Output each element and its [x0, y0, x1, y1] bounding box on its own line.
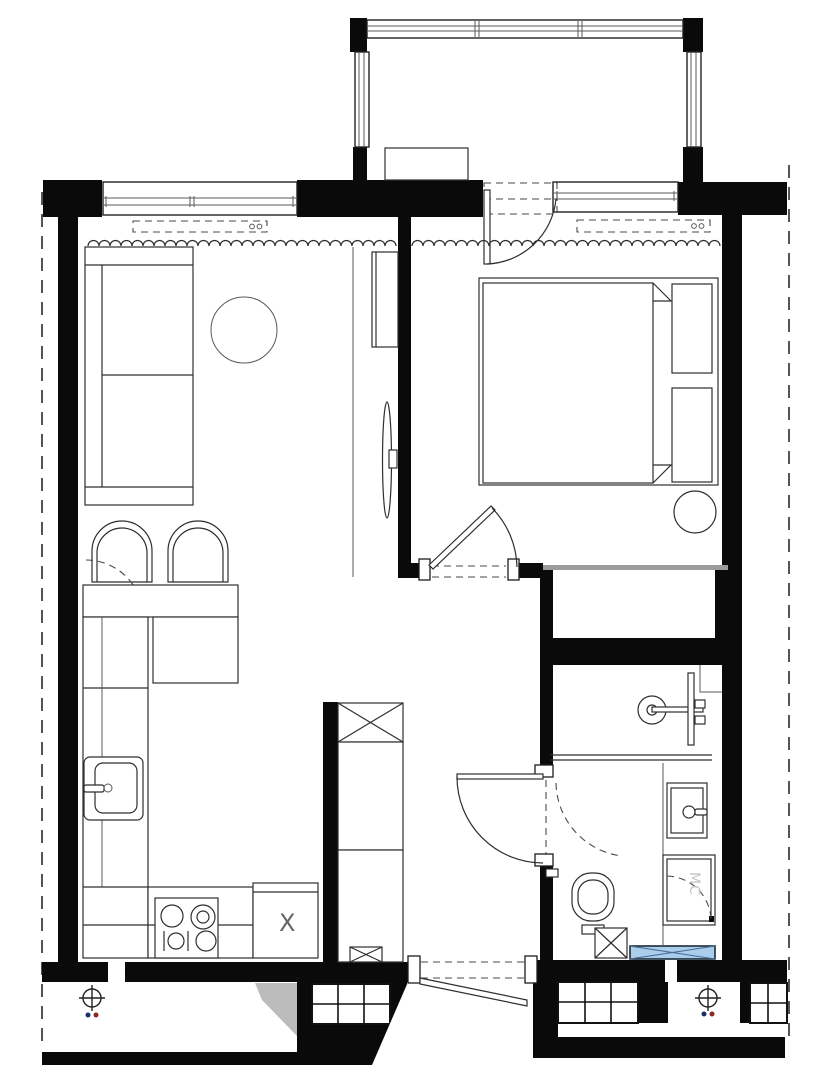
stove — [155, 898, 218, 958]
marker-dot-red — [710, 1012, 715, 1017]
bedside-pouf — [674, 491, 716, 533]
balcony-window-left — [355, 52, 369, 147]
survey-marker-right — [695, 985, 721, 1017]
living-room-pelmet — [133, 221, 267, 232]
window-grid-right-b — [750, 983, 787, 1023]
bedroom-pelmet — [577, 220, 710, 232]
coffee-table — [211, 297, 277, 363]
pillow — [672, 284, 712, 373]
balcony-door — [484, 183, 557, 264]
bedroom-door-swing — [492, 508, 517, 567]
tv — [383, 402, 398, 518]
counter-top-section — [83, 585, 238, 617]
kitchen: X — [83, 521, 318, 958]
door-post — [535, 854, 553, 866]
bedroom-door-leaf — [429, 506, 495, 569]
radiator-mat — [630, 946, 715, 959]
hallway — [338, 703, 403, 962]
survey-marker-left — [79, 985, 105, 1018]
dining-table — [153, 617, 238, 683]
toilet — [546, 869, 614, 934]
cabinet-x-mark: X — [279, 909, 295, 937]
wardrobe-cabinet-upper — [338, 742, 403, 850]
shower-mixer — [695, 716, 705, 724]
door-post — [408, 956, 420, 983]
balcony-bench — [385, 148, 468, 180]
living-room-curtain — [88, 241, 396, 246]
kitchen-sink — [84, 757, 143, 820]
entry-door-leaf — [420, 978, 527, 1006]
shower-glass — [688, 673, 694, 745]
marker-dot-blue — [702, 1012, 707, 1017]
entry-door — [408, 956, 537, 1006]
balcony-window-top — [367, 20, 683, 38]
washing-machine: MC — [663, 855, 715, 925]
closet-light-wall — [543, 565, 728, 570]
marker-dot-blue — [86, 1013, 91, 1018]
bedroom-door — [419, 506, 519, 580]
balcony-door-leaf — [484, 190, 490, 264]
floor-drain — [595, 928, 627, 958]
cabinet-vent-box — [350, 947, 382, 962]
door-post — [419, 559, 430, 580]
kitchen-extract-cabinet: X — [253, 883, 318, 958]
bedroom-curtain — [412, 241, 720, 246]
bathroom-door — [457, 765, 553, 866]
window-grid-right-a — [558, 982, 638, 1023]
balcony-window-right — [687, 52, 701, 147]
shade-wedge — [255, 983, 297, 1036]
window-grid-left — [312, 984, 390, 1024]
floor-plan-drawing: X — [0, 0, 834, 1080]
pillow — [672, 388, 712, 482]
bathroom: MC — [457, 665, 722, 959]
paper-holder-icon — [546, 869, 558, 877]
balcony-door-swing — [487, 199, 556, 264]
sofa — [85, 247, 193, 505]
vent-shaft — [338, 703, 403, 742]
faucet-icon — [84, 785, 104, 792]
bathroom-door-leaf — [457, 774, 543, 779]
floor-plan-canvas: X — [0, 0, 834, 1080]
marker-dot-red — [94, 1013, 99, 1018]
living-room-window — [103, 182, 297, 215]
door-post — [525, 956, 537, 983]
double-bed — [479, 278, 718, 485]
washbasin — [667, 783, 707, 838]
mattress — [483, 283, 653, 483]
bedroom — [419, 278, 718, 580]
dining-chair-2 — [168, 521, 228, 582]
partition-living-bedroom — [398, 212, 411, 567]
wardrobe-cabinet-lower — [338, 850, 403, 962]
tv-console — [372, 252, 398, 347]
bathroom-door-swing — [457, 777, 543, 863]
shower — [550, 665, 722, 760]
bedroom-window — [553, 182, 678, 212]
door-swing-dashed — [556, 783, 622, 856]
shower-mixer — [695, 700, 705, 708]
washing-machine-label: MC — [686, 872, 702, 896]
